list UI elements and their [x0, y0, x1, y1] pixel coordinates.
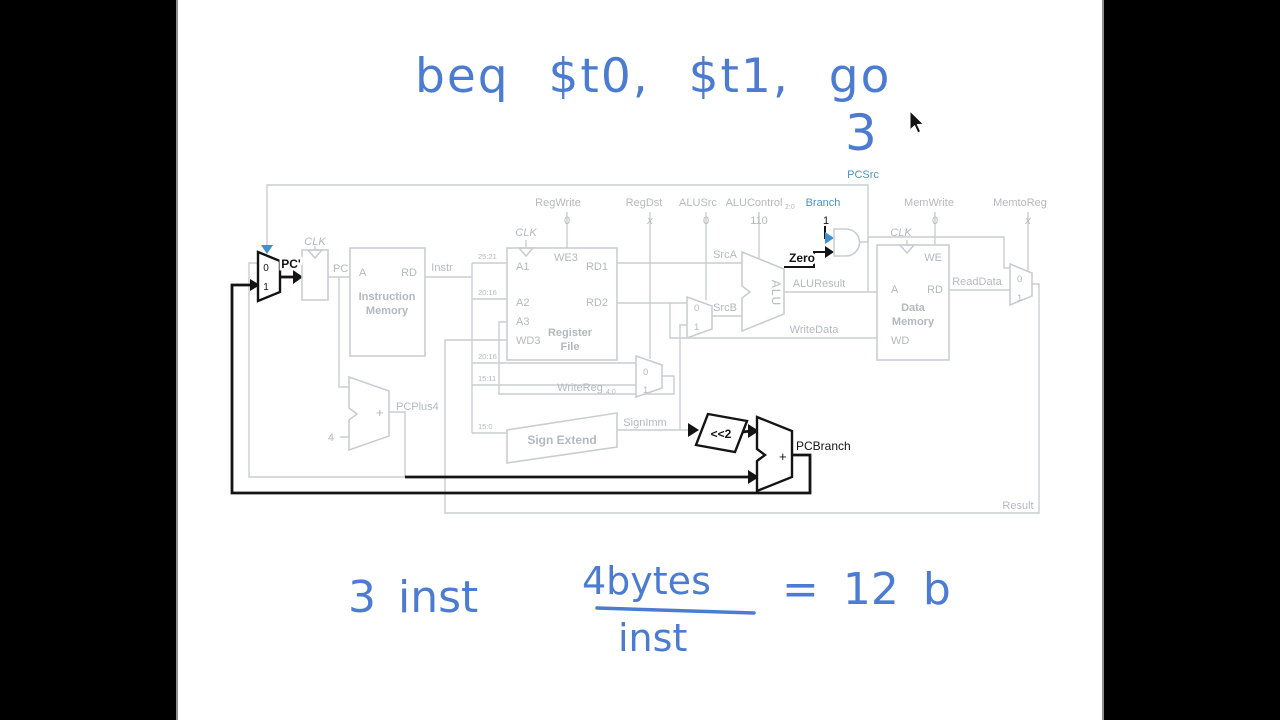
- pcsrc-label: PCSrc: [847, 169, 879, 181]
- readdata-label: ReadData: [952, 276, 1002, 288]
- regdst-value: x: [646, 215, 653, 227]
- shift-left-2-label: <<2: [711, 427, 732, 441]
- imem-a: A: [359, 267, 367, 279]
- dmem-title-2: Memory: [892, 316, 935, 328]
- regwrite-label: RegWrite: [535, 197, 581, 209]
- dmem-wd: WD: [891, 335, 909, 347]
- writereg-mux-1: 1: [643, 385, 648, 396]
- handwriting-fraction-numerator: 4bytes: [582, 559, 711, 603]
- regdst-label: RegDst: [626, 197, 663, 209]
- regfile-title-1: Register: [548, 327, 593, 339]
- pcbranch-plus: +: [779, 449, 787, 464]
- regfile-rd2: RD2: [586, 297, 608, 309]
- pc-mux-1: 1: [263, 282, 269, 293]
- regfile-a1: A1: [516, 261, 529, 273]
- regfile-title-2: File: [561, 341, 580, 353]
- slice-20-16-a: 20:16: [478, 288, 497, 297]
- imem-rd: RD: [401, 267, 417, 279]
- pc-label: PC: [333, 263, 348, 275]
- dmem-title-1: Data: [901, 302, 926, 314]
- srcb-label: SrcB: [713, 302, 737, 314]
- memtoreg-value: x: [1024, 215, 1031, 227]
- pc-mux-0: 0: [263, 263, 269, 274]
- memwrite-label: MemWrite: [904, 197, 954, 209]
- regfile-clk-label: CLK: [515, 227, 537, 239]
- writedata-label: WriteData: [790, 324, 840, 336]
- regfile-a2: A2: [516, 297, 529, 309]
- dmem-rd: RD: [927, 284, 943, 296]
- handwriting-calc-left: 3 inst: [348, 572, 478, 623]
- slice-15-0: 15:0: [478, 422, 493, 431]
- imem-title-1: Instruction: [359, 291, 416, 303]
- mouse-cursor: [910, 111, 923, 133]
- pc-clk-label: CLK: [304, 236, 326, 248]
- alu-label: ALU: [769, 280, 783, 306]
- branch-value: 1: [823, 215, 829, 227]
- imem-title-2: Memory: [366, 305, 409, 317]
- slice-20-16-b: 20:16: [478, 352, 497, 361]
- pcbranch-label: PCBranch: [796, 439, 851, 453]
- memtoreg-mux-1: 1: [1017, 293, 1022, 304]
- srcb-mux-1: 1: [694, 322, 699, 333]
- and-gate: [834, 229, 860, 256]
- lecture-frame-svg: RegWrite 0 RegDst x ALUSrc 0 ALUControl …: [178, 0, 1106, 720]
- handwriting-instruction: beq $t0, $t1, go: [415, 49, 891, 104]
- alusrc-label: ALUSrc: [679, 197, 717, 209]
- regfile-rd1: RD1: [586, 261, 608, 273]
- writereg-mux: [636, 356, 662, 397]
- alucontrol-value: 110: [750, 215, 768, 227]
- pc-mux: [258, 252, 280, 301]
- control-labels: RegWrite 0 RegDst x ALUSrc 0 ALUControl …: [535, 169, 1047, 227]
- pcplus4-plus: +: [376, 405, 384, 420]
- slice-15-11: 15:11: [478, 374, 496, 383]
- signimm-label: SignImm: [623, 417, 666, 429]
- slice-25-21: 25:21: [478, 252, 497, 261]
- regwrite-value: 0: [564, 215, 570, 227]
- whiteboard-canvas[interactable]: RegWrite 0 RegDst x ALUSrc 0 ALUControl …: [176, 0, 1104, 720]
- handwriting-fraction-denominator: inst: [618, 616, 687, 660]
- handwriting-calc-result: = 12 b: [782, 564, 951, 615]
- alusrc-value: 0: [703, 215, 709, 227]
- srca-label: SrcA: [713, 249, 738, 261]
- zero-label: Zero: [789, 251, 815, 265]
- handwriting-count: 3: [845, 104, 877, 162]
- dmem-clk-label: CLK: [890, 227, 912, 239]
- alucontrol-sub: 2:0: [785, 204, 795, 211]
- aluresult-label: ALUResult: [793, 278, 846, 290]
- alucontrol-label: ALUControl: [726, 197, 783, 209]
- branch-label: Branch: [806, 197, 841, 209]
- regfile-a3: A3: [516, 316, 529, 328]
- handwriting-fraction-bar: [597, 608, 754, 613]
- pc-prime-label: PC': [281, 257, 301, 271]
- memtoreg-mux-0: 0: [1017, 274, 1022, 285]
- sign-extend-label: Sign Extend: [527, 433, 596, 447]
- const-4-label: 4: [328, 432, 334, 444]
- memwrite-value: 0: [932, 215, 938, 227]
- regfile-we3: WE3: [554, 252, 578, 264]
- srcb-mux: [687, 297, 712, 338]
- regfile-wd3: WD3: [516, 335, 540, 347]
- writereg-label: WriteReg: [557, 382, 603, 394]
- srcb-mux-0: 0: [694, 303, 699, 314]
- writereg-mux-0: 0: [643, 367, 648, 378]
- instr-label: Instr: [431, 262, 453, 274]
- memtoreg-label: MemtoReg: [993, 197, 1047, 209]
- result-label: Result: [1002, 500, 1033, 512]
- writereg-sub: 4:0: [606, 389, 616, 396]
- pcbranch-adder: [757, 417, 792, 491]
- datapath-blocks: [258, 229, 1032, 491]
- dmem-a: A: [891, 284, 899, 296]
- pcplus4-label: PCPlus4: [396, 401, 439, 413]
- dmem-we: WE: [924, 252, 942, 264]
